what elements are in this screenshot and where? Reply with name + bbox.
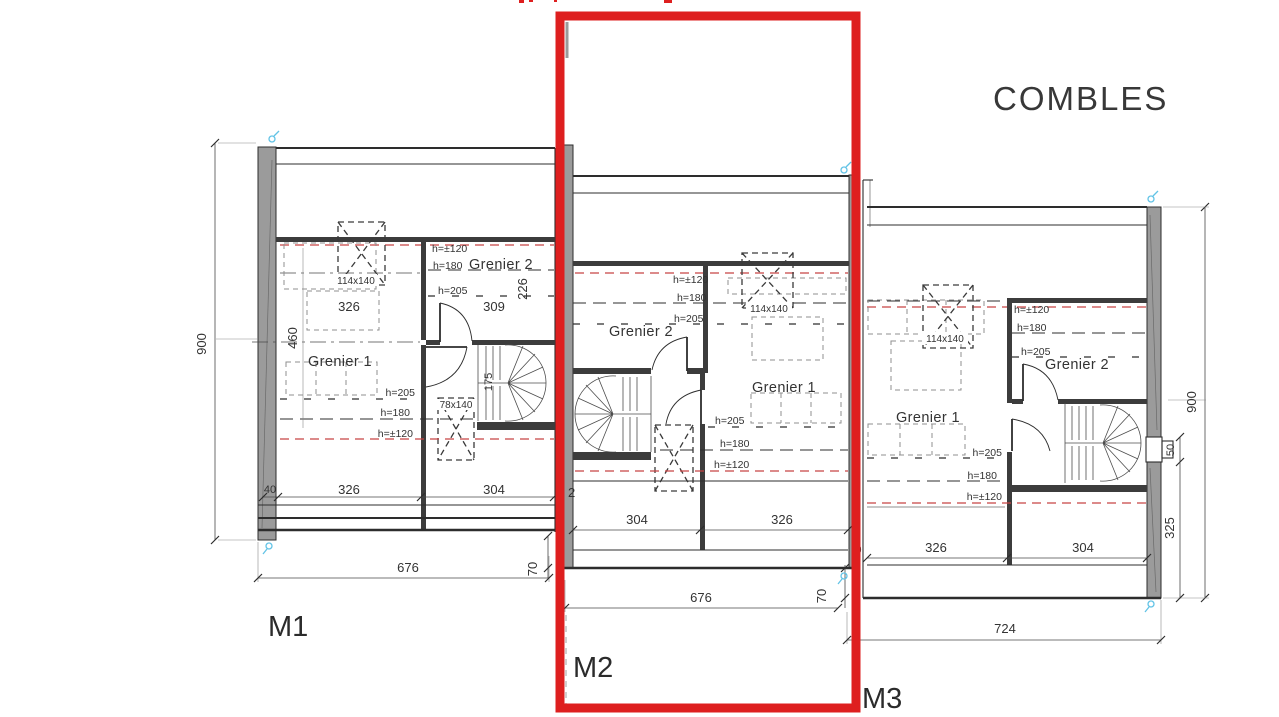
m2-dim-width-group: 676 [561,580,842,710]
m3-right-wall-upper [1147,207,1161,437]
m1-corner-marker-bottom [263,543,272,554]
m1-h205-lower: h=205 [386,387,416,399]
unit-m2-plan: 114x140 [561,145,860,710]
m3-dim-width-group: 724 [843,600,1165,644]
m3-h180-lower: h=180 [968,470,998,482]
m3-dim-325-group: 325 [1162,462,1184,602]
m1-room-label-grenier1: Grenier 1 [308,354,372,370]
m1-knee-wall [276,237,555,242]
unit-m3-plan: 114x140 326 304 0 Grenier 2 [843,180,1209,644]
floor-plan-canvas: 114x140 175 78x140 [0,0,1279,717]
m1-room-width-dims: 40 326 304 [259,482,558,501]
m1-room-label-grenier2: Grenier 2 [469,257,533,273]
m2-corner-marker-bottom [838,573,847,584]
m1-dim-309: 309 [483,299,505,314]
m2-dim-304-bottom: 304 [626,512,648,527]
m3-skylight-main-label: 114x140 [926,334,964,345]
m1-skylight-stair: 78x140 [436,398,477,460]
m1-skylight-main-label: 114x140 [337,276,375,287]
m1-dim-height: 900 [194,333,209,355]
m1-dim-226: 226 [515,278,530,300]
m3-dim-height: 900 [1184,391,1199,413]
m2-h180-upper: h=180 [677,292,707,304]
m2-skylight-main-label: 114x140 [750,304,788,315]
m1-h120-upper: h=±120 [432,243,467,255]
red-mark-4 [664,0,672,3]
m3-dim-304-bottom: 304 [1072,540,1094,555]
m2-room-label-grenier1: Grenier 1 [752,380,816,396]
m1-dim-wall: 40 [264,484,276,496]
m1-skylight-stair-label: 78x140 [440,400,473,411]
m1-dim-326-top: 326 [338,299,360,314]
m1-h120-lower: h=±120 [378,428,413,440]
m2-h205-upper: h=205 [674,313,704,325]
page-title: COMBLES [993,80,1168,117]
m1-stair-width-dim: 175 [483,373,495,391]
m1-dim-offset-group: 70 [525,532,552,578]
m2-left-wall [564,145,573,568]
unit-label-m3: M3 [862,683,902,715]
m1-h205-upper: h=205 [438,285,468,297]
m3-skylight-main: 114x140 [922,285,973,348]
m3-dim-width: 724 [994,621,1016,636]
m3-h120-upper: h=±120 [1014,304,1049,316]
red-mark-2 [529,0,533,2]
m1-h180-lower: h=180 [381,407,411,419]
m2-dim-partial: 2 [568,485,575,500]
m1-h180-upper: h=180 [433,260,463,272]
m2-spiral-stair [575,376,651,452]
m2-corner-marker-top [841,162,851,173]
m1-dim-offset: 70 [525,562,540,576]
m1-skylight-main: 114x140 [335,222,385,287]
m2-h120-upper: h=±120 [673,274,708,286]
m3-dim-325: 325 [1162,517,1177,539]
m1-dim-height-group: 900 [194,139,258,544]
m1-corner-marker-top [269,131,279,142]
m3-h120-lower: h=±120 [967,491,1002,503]
unit-label-m1: M1 [268,611,308,643]
m1-dim-width-group: 676 [254,542,553,582]
m2-h120-lower: h=±120 [714,459,749,471]
m2-room-label-grenier2: Grenier 2 [609,324,673,340]
m2-dim-offset-group: 70 [814,564,849,608]
m2-h205-lower: h=205 [715,415,745,427]
m3-dim-window: 50 [1165,444,1177,456]
floor-plan-page: 114x140 175 78x140 [0,0,1279,717]
m1-dim-304-bottom: 304 [483,482,505,497]
m3-dim-326-bottom: 326 [925,540,947,555]
m1-dim-depth: 460 [285,327,300,349]
m2-room-width-dims: 304 326 [569,512,852,534]
m3-h205-lower: h=205 [973,447,1003,459]
m3-spiral-stair [1065,403,1141,483]
m3-knee-wall [1007,298,1147,303]
red-mark-1 [519,0,524,3]
m2-h180-lower: h=180 [720,438,750,450]
unit-m1-plan: 114x140 175 78x140 [194,131,558,582]
unit-label-m2: M2 [573,652,613,684]
m3-dim-height-group: 900 [1163,203,1209,602]
m3-corner-marker-top [1148,191,1158,202]
m3-h205-upper: h=205 [1021,346,1051,358]
m3-dim-window-group: 50 [1165,433,1184,466]
m2-dim-offset: 70 [814,589,829,603]
m3-room-label-grenier2: Grenier 2 [1045,357,1109,373]
red-mark-3 [554,0,557,2]
m3-right-wall-lower [1147,462,1161,598]
m3-room-label-grenier1: Grenier 1 [896,410,960,426]
m2-dim-width: 676 [690,590,712,605]
m3-corner-marker-bottom [1145,601,1154,612]
m1-dim-326-bottom: 326 [338,482,360,497]
m2-knee-wall [573,261,849,266]
m1-dim-width: 676 [397,560,419,575]
m3-h180-upper: h=180 [1017,322,1047,334]
m2-dim-326-bottom: 326 [771,512,793,527]
